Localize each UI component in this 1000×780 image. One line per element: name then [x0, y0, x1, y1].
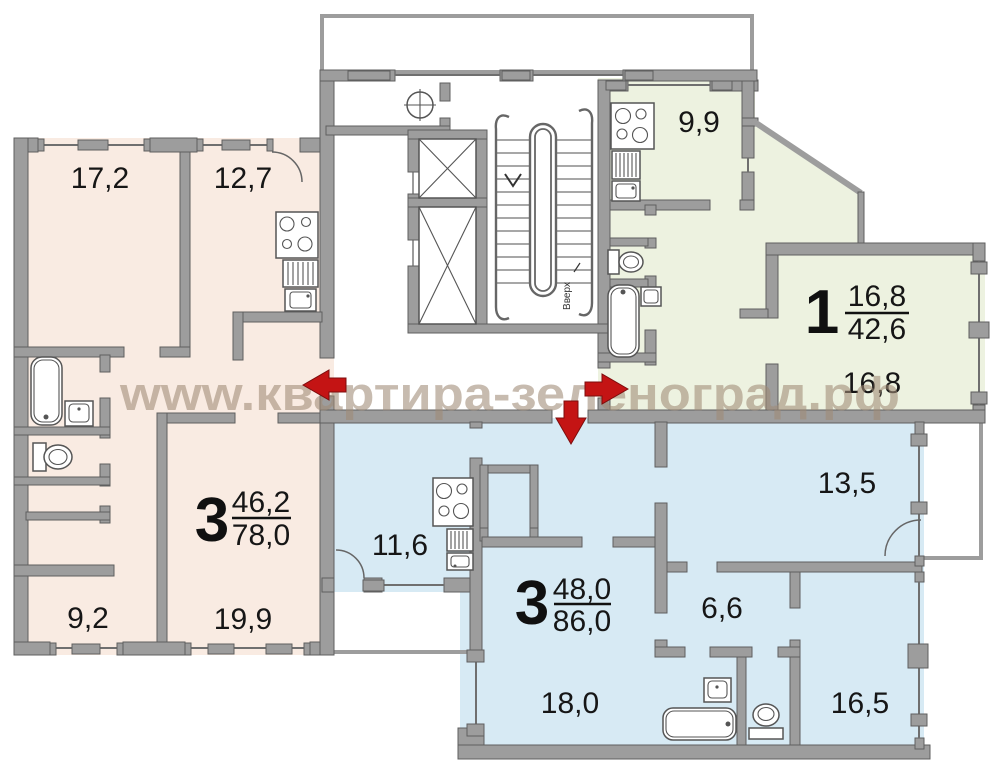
bathtub-icon [663, 708, 736, 740]
room-label-6-6: 6,6 [701, 592, 743, 625]
room-label-12-7: 12,7 [214, 162, 272, 195]
room-label-17-2: 17,2 [71, 162, 129, 195]
pink-apartment-number: 3 [195, 486, 229, 555]
toilet-icon [608, 250, 619, 274]
green-living-area: 16,8 [848, 280, 906, 313]
watermark-text: www.квартира-зеленоград.рф [119, 367, 900, 420]
room-label-13-5: 13,5 [818, 467, 876, 500]
stair-direction-label: Вверх [562, 282, 573, 310]
blue-total-area: 86,0 [553, 605, 611, 638]
entrance-vestibule-balcony [322, 16, 752, 72]
stair-center-railing [530, 124, 556, 296]
blue-apartment-number: 3 [515, 569, 549, 638]
room-label-18-0: 18,0 [541, 687, 599, 720]
green-apartment-number: 1 [805, 278, 839, 347]
room-label-9-9: 9,9 [678, 106, 720, 139]
pink-living-area: 46,2 [232, 486, 290, 519]
elevator-shafts [419, 139, 476, 324]
floor-plan-svg: Вверх [0, 0, 1000, 775]
room-label-16-5: 16,5 [831, 687, 889, 720]
blue-living-area: 48,0 [553, 573, 611, 606]
room-label-19-9: 19,9 [214, 603, 272, 636]
pink-total-area: 78,0 [232, 519, 290, 552]
stairwell: Вверх [496, 109, 592, 319]
stove-icon [611, 103, 654, 149]
room-label-9-2: 9,2 [67, 602, 109, 635]
stair-down-arrow-icon [505, 174, 521, 186]
kitchen-loggia-outline [330, 592, 470, 652]
room-label-11-6: 11,6 [372, 529, 428, 562]
garbage-chute [404, 89, 436, 121]
green-total-area: 42,6 [848, 313, 906, 346]
bedroom-loggia-outline [922, 423, 981, 558]
floor-plan: Вверх [0, 0, 1000, 775]
bathtub-icon [608, 285, 639, 357]
